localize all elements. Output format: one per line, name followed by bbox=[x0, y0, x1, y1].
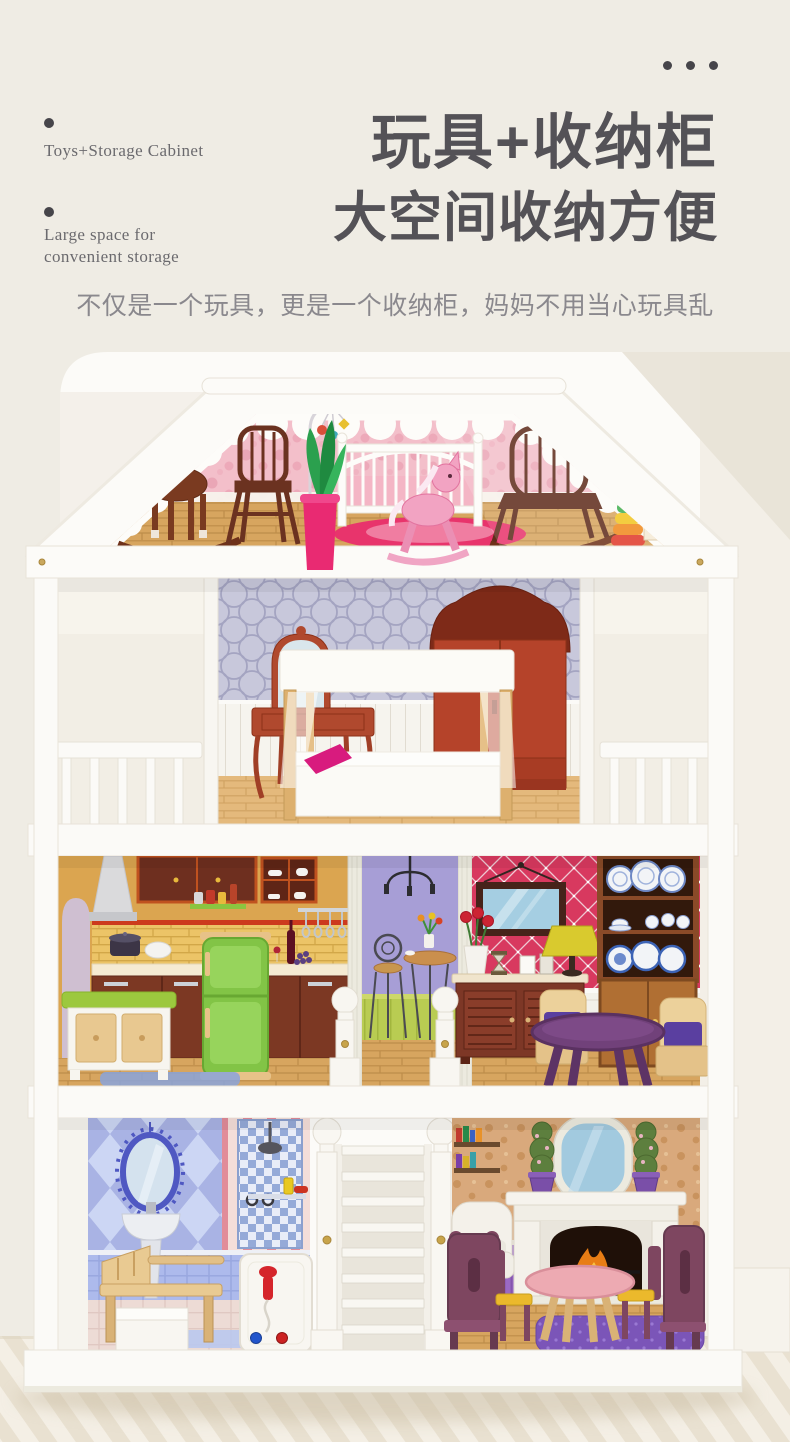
ground-floor bbox=[56, 1116, 708, 1352]
dot bbox=[663, 61, 672, 70]
floor-beam bbox=[28, 824, 738, 856]
feature-en-1: Toys+Storage Cabinet bbox=[44, 140, 203, 162]
staircase bbox=[311, 1118, 457, 1352]
feature-bullet bbox=[44, 207, 54, 217]
floor-beam bbox=[28, 1086, 738, 1118]
title-line-2: 大空间收纳方便 bbox=[333, 186, 718, 251]
house-left-post bbox=[34, 556, 58, 1350]
feature-bullet bbox=[44, 118, 54, 128]
title-line-1: 玩具+收纳柜 bbox=[333, 110, 718, 176]
house-base-edge bbox=[24, 1386, 742, 1392]
middle-floor bbox=[56, 856, 712, 1086]
toy-fridge bbox=[200, 932, 271, 1080]
parlor bbox=[444, 1116, 706, 1352]
ellipsis-icon bbox=[663, 61, 718, 70]
second-floor bbox=[34, 578, 712, 824]
page-title: 玩具+收纳柜 大空间收纳方便 bbox=[333, 110, 718, 251]
subtitle: 不仅是一个玩具，更是一个收纳柜，妈妈不用当心玩具乱 bbox=[0, 286, 790, 322]
shower-toy bbox=[240, 1254, 312, 1352]
page: A bbox=[0, 0, 790, 1442]
side-step bbox=[734, 1268, 790, 1352]
kitchen bbox=[56, 856, 354, 1086]
dining-living-room bbox=[452, 856, 710, 1086]
feature-en-2-line1: Large space for bbox=[44, 224, 179, 246]
feature-en-2: Large space for convenient storage bbox=[44, 224, 179, 268]
feature-en-1-line: Toys+Storage Cabinet bbox=[44, 140, 203, 162]
dot bbox=[686, 61, 695, 70]
house-right-post bbox=[708, 556, 734, 1350]
dot bbox=[709, 61, 718, 70]
toy-stove bbox=[62, 992, 176, 1080]
house-base bbox=[24, 1350, 742, 1392]
feature-en-2-line2: convenient storage bbox=[44, 246, 179, 268]
bathroom bbox=[56, 1118, 312, 1352]
